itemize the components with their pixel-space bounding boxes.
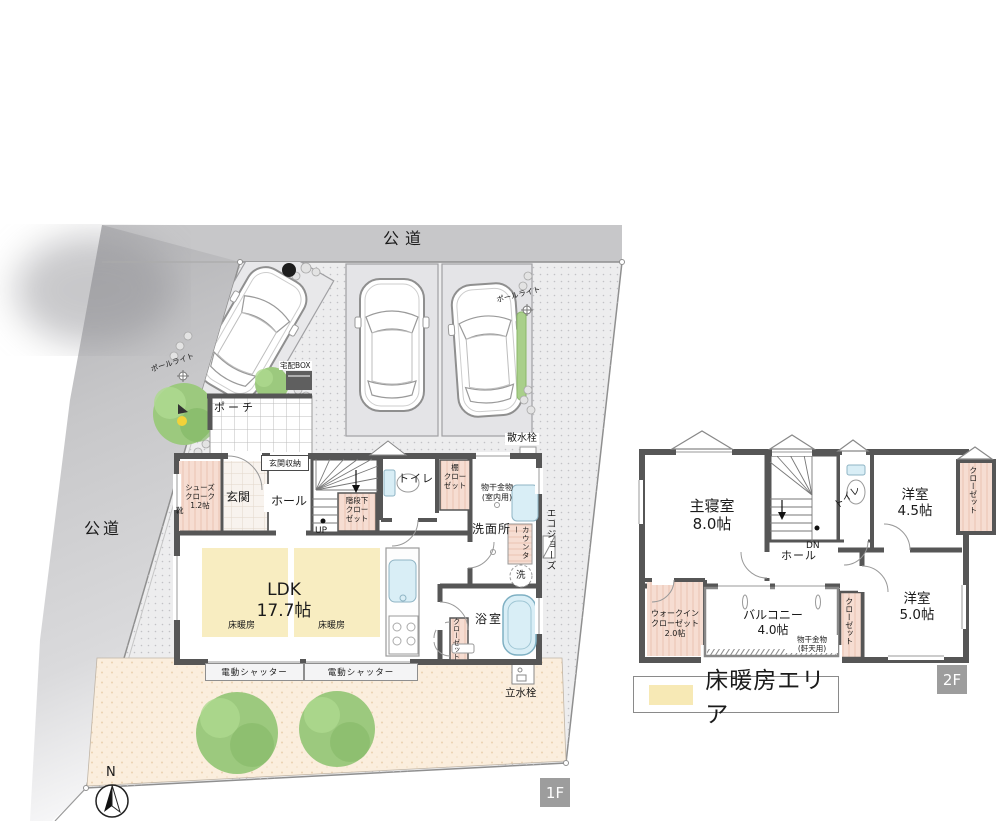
- car-2: [355, 279, 429, 411]
- sprinkler-tap-label: 散水栓: [505, 433, 539, 445]
- stairs-2f: [770, 455, 838, 541]
- compass-north-label: N: [106, 765, 116, 781]
- meter-cover: [282, 263, 296, 277]
- closet-northeast-label: クローゼット: [968, 466, 978, 530]
- hall-label-1f: ホール: [266, 494, 312, 509]
- ldk-label: LDK 17.7帖: [239, 580, 329, 623]
- parcel-box-label: 宅配BOX: [279, 361, 312, 370]
- floor-heating-left-label: 床暖房: [228, 621, 255, 632]
- laundry-hook-eaves-label: 物干金物 (軒天用): [786, 635, 838, 653]
- washroom-label: 洗面所: [472, 522, 511, 537]
- floorplan-canvas: [0, 0, 1000, 821]
- hedge: [517, 312, 526, 400]
- standing-tap-icon: [512, 664, 534, 684]
- tree-garden-left: [196, 692, 278, 774]
- tree-garden-right: [299, 691, 375, 767]
- standing-tap-label: 立水栓: [505, 687, 537, 700]
- porch-label: ポーチ: [214, 401, 256, 414]
- bedroom-50-label: 洋室 5.0帖: [888, 591, 946, 624]
- eco-jozu-label: エコジョーズ: [544, 508, 556, 603]
- shelf-closet-label: 棚 クロー ゼット: [438, 463, 472, 490]
- entrance-label: 玄関: [226, 490, 250, 505]
- bedroom-45-label: 洋室 4.5帖: [886, 487, 944, 520]
- laundry-hook-indoor-label: 物干金物 (室内用): [472, 483, 522, 503]
- road-label-top: 公道: [370, 229, 440, 249]
- hall-label-2f: ホール: [781, 549, 817, 562]
- floor1-tag: 1F: [540, 778, 570, 807]
- washer-label: 洗: [516, 570, 526, 582]
- entrance-storage-box: 玄関収納: [261, 455, 309, 471]
- shoe-shelf-label: 靴: [176, 506, 184, 515]
- counter-label: カウンター: [512, 526, 530, 564]
- shutter-right: 電動シャッター: [304, 663, 418, 681]
- parcel-box-icon: [286, 371, 312, 390]
- master-bedroom-label: 主寝室 8.0帖: [668, 497, 756, 534]
- toilet-label-1f: トイレ: [398, 472, 434, 485]
- floor2-tag: 2F: [937, 665, 967, 694]
- shutter-left: 電動シャッター: [205, 663, 304, 681]
- kitchen-counter: [386, 548, 419, 656]
- under-stair-closet-label: 階段下 クロー ゼット: [338, 496, 376, 523]
- road-label-left: 公道: [84, 519, 122, 539]
- floor-heating-legend: 床暖房エリア: [633, 676, 839, 713]
- ldk-closet-label: クローゼット: [452, 618, 461, 660]
- walk-in-closet-label: ウォークイン クローゼット 2.0帖: [639, 609, 711, 638]
- balcony-label: バルコニー 4.0帖: [733, 608, 813, 637]
- up-label: UP: [315, 526, 327, 537]
- floor-heating-right-label: 床暖房: [318, 621, 345, 632]
- bath-label: 浴室: [475, 612, 503, 627]
- tree-entrance-large: [153, 383, 215, 445]
- legend-swatch: [649, 685, 693, 705]
- floorplan-page: 公道 公道 ポールライト ポールライト 宅配BOX ポーチ 散水栓 シューズ ク…: [0, 0, 1000, 821]
- car-3: [445, 282, 528, 419]
- closet-middle-label: クローゼット: [844, 597, 854, 655]
- legend-label: 床暖房エリア: [705, 661, 838, 729]
- compass: [96, 785, 128, 817]
- floor1-plan: [173, 441, 543, 666]
